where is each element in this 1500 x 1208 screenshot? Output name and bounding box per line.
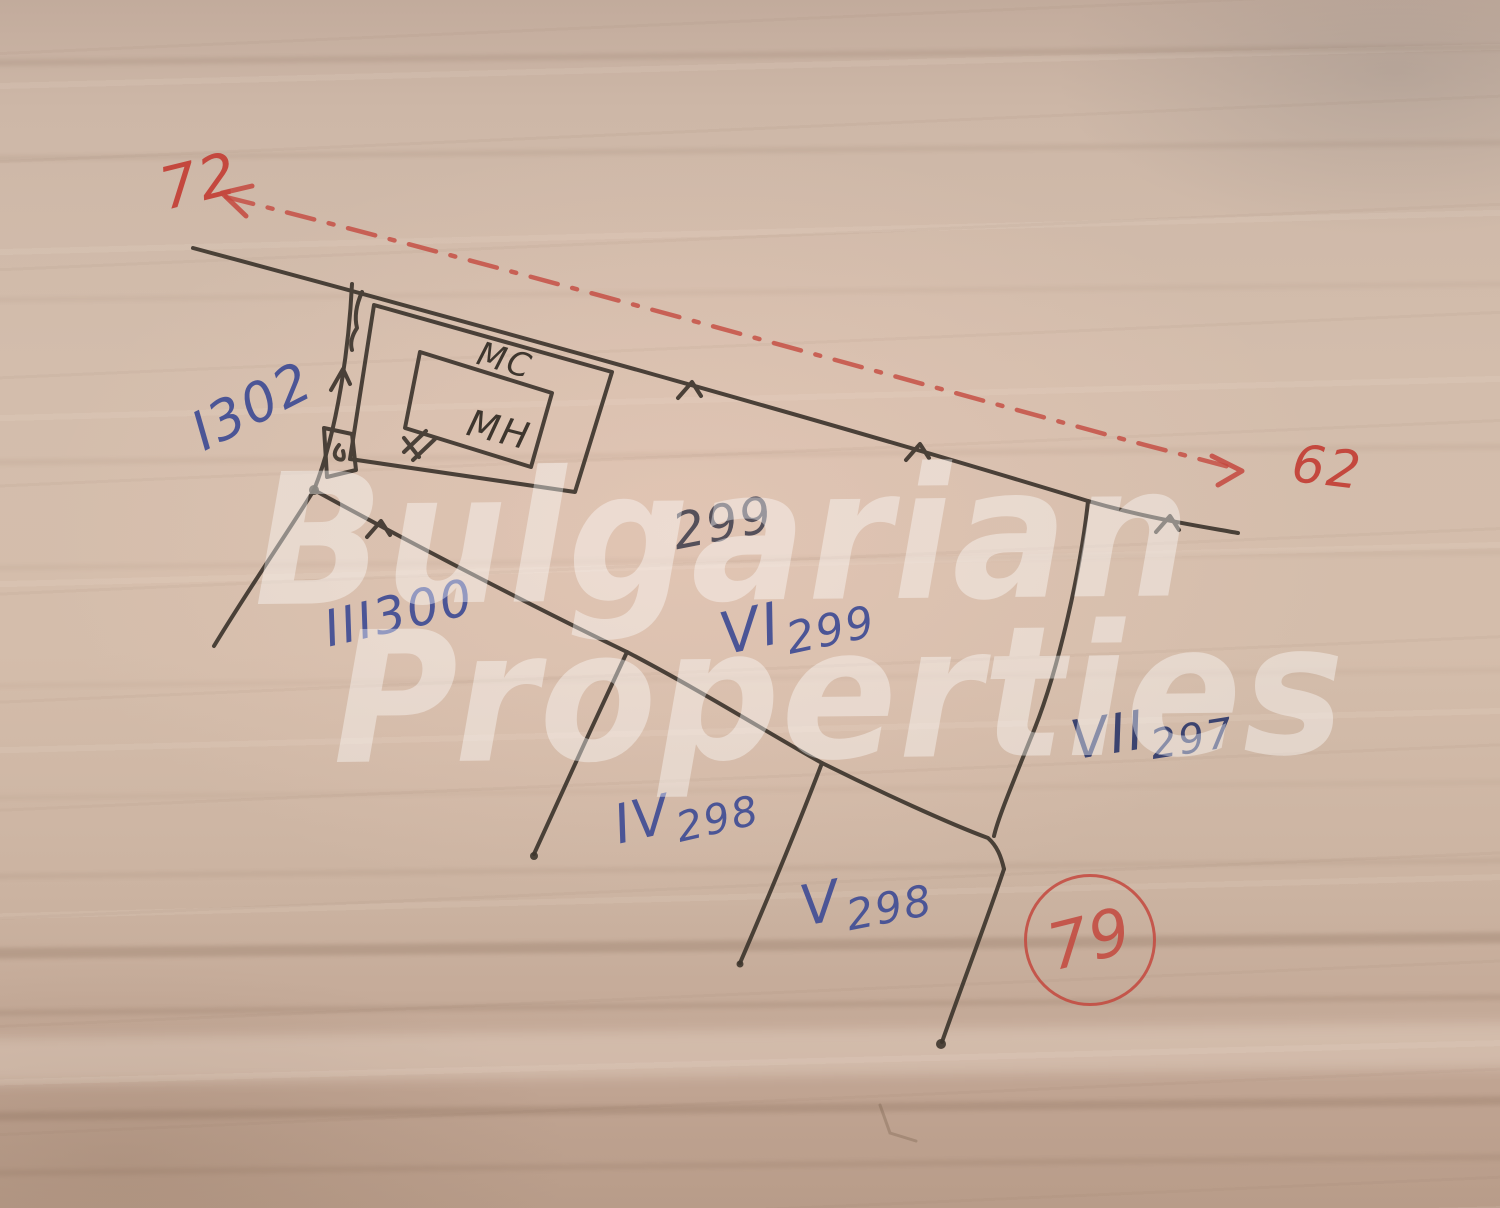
sheet-number: 79 (1041, 894, 1140, 986)
watermark-line2: Properties (332, 599, 1346, 790)
photographed-sketch: 72 62 I302 III300 299 VI299 VII297 IV298… (0, 0, 1500, 1208)
boundary-bottom-right (942, 869, 1004, 1042)
tick-mark (678, 382, 701, 398)
ink-dot (737, 961, 744, 968)
ink-dot (530, 852, 538, 860)
ink-dot (936, 1039, 946, 1049)
street-arrow-right (1212, 456, 1242, 485)
wood-scratch (880, 1105, 916, 1141)
sheet-number-circle: 79 (1024, 874, 1156, 1006)
street-label-62: 62 (1289, 434, 1366, 502)
